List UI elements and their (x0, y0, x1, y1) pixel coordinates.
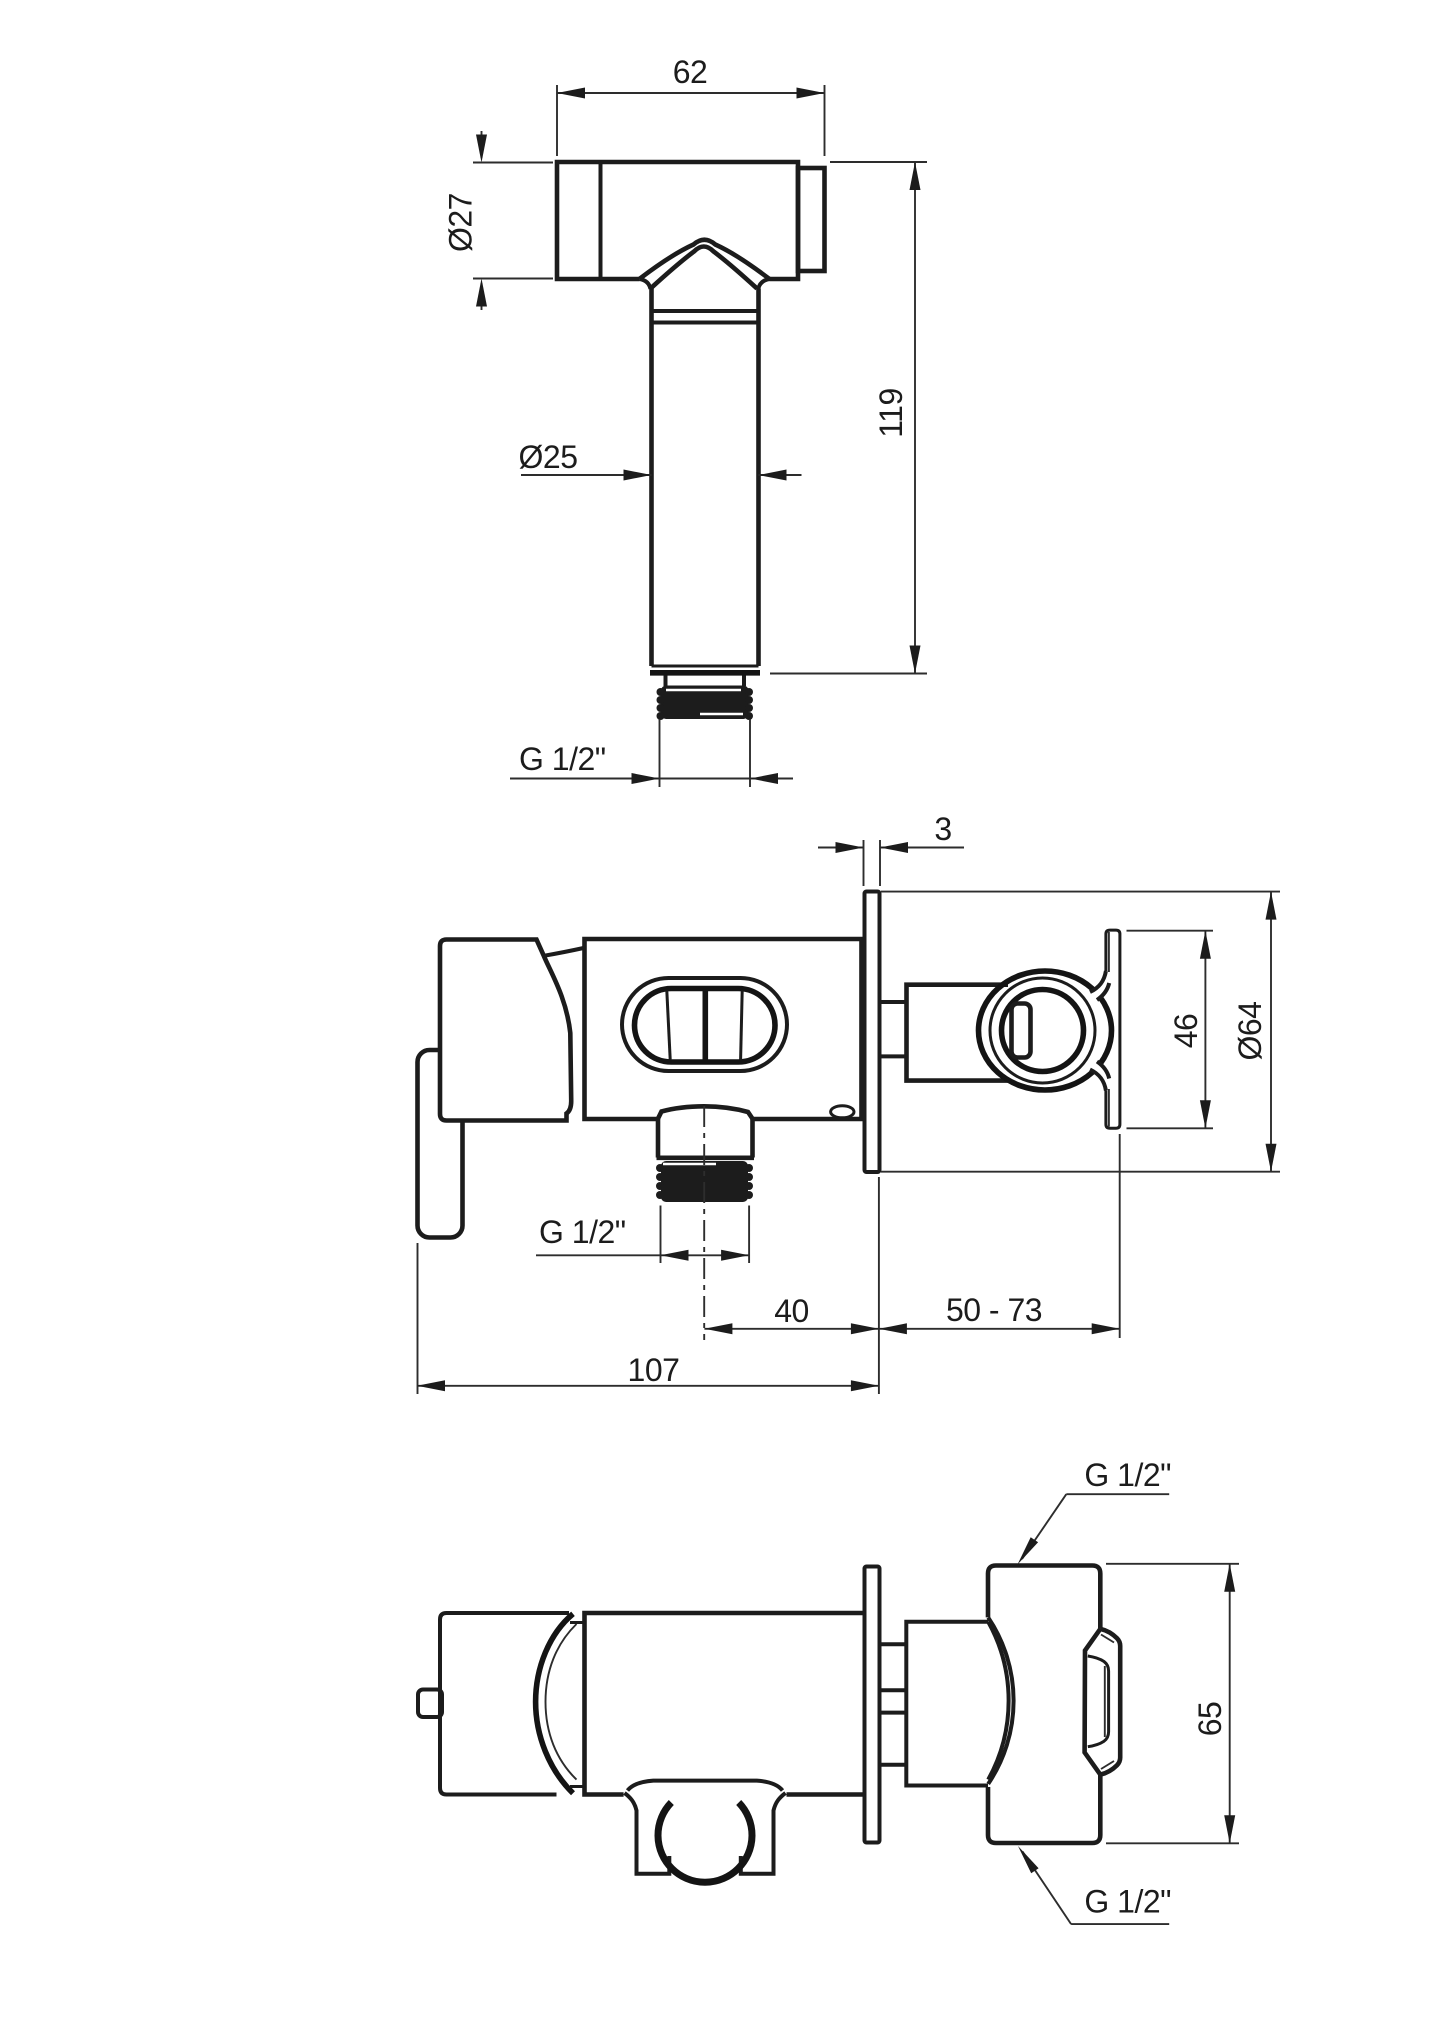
svg-text:G 1/2": G 1/2" (1084, 1457, 1171, 1493)
svg-text:3: 3 (934, 811, 951, 847)
svg-text:107: 107 (628, 1352, 680, 1388)
svg-text:62: 62 (673, 54, 708, 90)
svg-text:40: 40 (774, 1293, 809, 1329)
svg-text:Ø27: Ø27 (443, 193, 479, 252)
svg-text:Ø64: Ø64 (1232, 1002, 1268, 1061)
svg-text:G 1/2": G 1/2" (519, 741, 606, 777)
svg-text:46: 46 (1168, 1014, 1204, 1049)
svg-text:Ø25: Ø25 (519, 439, 578, 475)
svg-text:119: 119 (873, 388, 909, 438)
svg-text:G 1/2": G 1/2" (539, 1214, 626, 1250)
svg-text:G 1/2": G 1/2" (1084, 1884, 1171, 1920)
svg-text:65: 65 (1192, 1702, 1228, 1737)
svg-text:50 - 73: 50 - 73 (946, 1292, 1042, 1328)
